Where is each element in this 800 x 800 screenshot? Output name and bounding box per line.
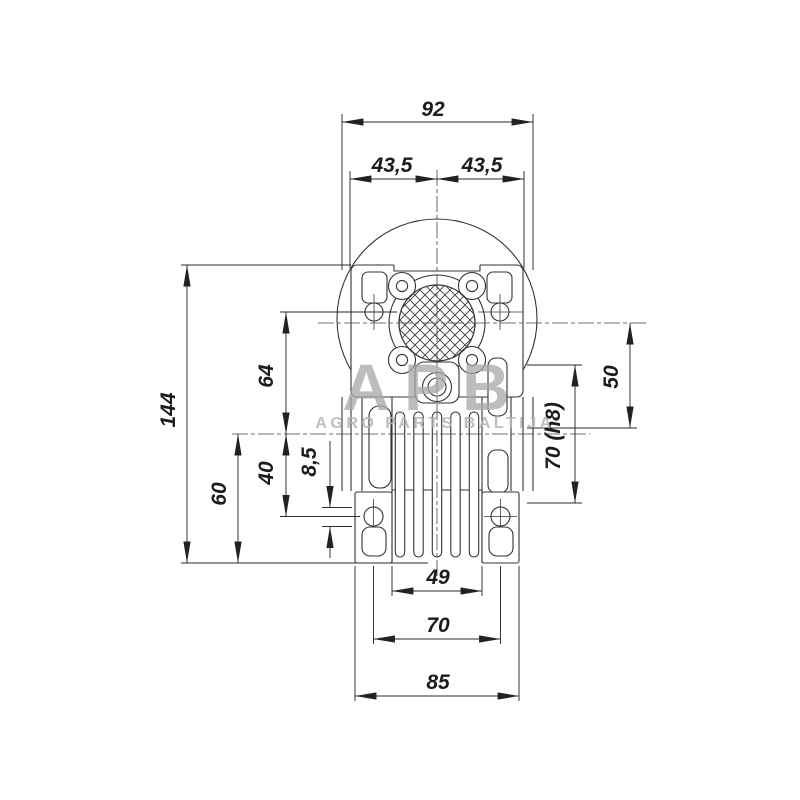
left-foot-slot (362, 527, 386, 556)
dimension-60: 60 (208, 434, 238, 563)
dimension-49: 49 (392, 566, 482, 596)
dim-92-label: 92 (421, 98, 445, 121)
dim-64-label: 64 (255, 364, 278, 388)
right-foot-slot (489, 527, 513, 556)
dim-85hole-label: 8,5 (298, 447, 321, 477)
watermark-subtitle: AGRO PARTS BALTIJA (315, 415, 554, 432)
dim-40-label: 40 (255, 461, 278, 486)
flange-slot-left (362, 272, 387, 303)
bolt-hole-top-right (466, 280, 477, 291)
dim-70-label: 70 (426, 614, 450, 637)
dim-70h8-label: 70 (h8) (542, 402, 565, 470)
dim-49-label: 49 (425, 566, 450, 589)
dim-85-label: 85 (426, 671, 450, 694)
right-column-window-lower (488, 450, 508, 493)
dim-435-right-label: 43,5 (461, 154, 503, 177)
dim-60-label: 60 (208, 482, 231, 506)
watermark-logo: APB (342, 350, 523, 424)
dim-50-label: 50 (600, 365, 623, 389)
dim-144-label: 144 (157, 392, 180, 427)
watermark: APB AGRO PARTS BALTIJA (315, 350, 554, 432)
dim-435-left-label: 43,5 (371, 154, 413, 177)
technical-drawing: 92 43,5 43,5 144 60 64 (0, 0, 800, 800)
bolt-hole-top-left (396, 280, 407, 291)
flange-slot-right (487, 272, 512, 303)
drawing-canvas: 92 43,5 43,5 144 60 64 (0, 0, 800, 800)
